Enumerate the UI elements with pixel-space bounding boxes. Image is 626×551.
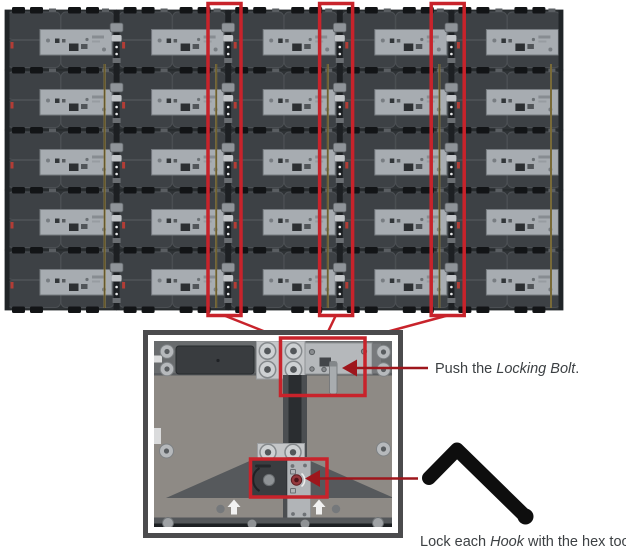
callout-text: . [575,361,579,377]
cabinet-panel [340,67,452,130]
cabinet-panel [340,127,452,190]
cabinet-panel [117,67,229,130]
cabinet-panel [451,67,563,130]
callout-lock-each-hook: Lock each Hook with the hex tool. [420,535,626,550]
installation-figure [0,0,626,551]
cabinet-panel [228,67,340,130]
cabinet-panel [117,247,229,313]
hex-key-icon [429,450,534,525]
cabinet-panel [228,7,340,70]
cabinet-panel [451,127,563,190]
cabinet-panel [5,187,117,250]
callout-text-italic: Locking Bolt [496,361,575,377]
callout-text: Lock each [420,534,490,550]
cabinet-panel [228,247,340,313]
cabinet-panel [451,247,563,313]
cabinet-panel [228,187,340,250]
cabinet-panel [5,7,117,70]
cabinet-panel [117,7,229,70]
cabinet-panel [117,127,229,190]
cabinet-panel [340,7,452,70]
locking-bolt-bracket [305,343,372,374]
callout-push-locking-bolt: Push the Locking Bolt. [435,361,579,377]
cabinet-panel [117,187,229,250]
callout-text: Push the [435,361,496,377]
cabinet-panel [451,7,563,70]
cabinet-panel [5,127,117,190]
cabinet-panel [5,67,117,130]
handle-bar [176,346,254,374]
cabinet-panel [5,247,117,313]
cabinet-panel [340,247,452,313]
cabinet-panel [451,187,563,250]
cabinet-panel [340,187,452,250]
panel-joint-detail [146,333,401,536]
callout-text-italic: Hook [490,534,524,550]
cabinet-panel [228,127,340,190]
hook-pivot [263,474,274,485]
callout-text: with the hex tool. [524,534,626,550]
led-wall-rear-view [5,7,563,313]
manual-page: Push the Locking Bolt. Lock each Hook wi… [0,0,626,551]
